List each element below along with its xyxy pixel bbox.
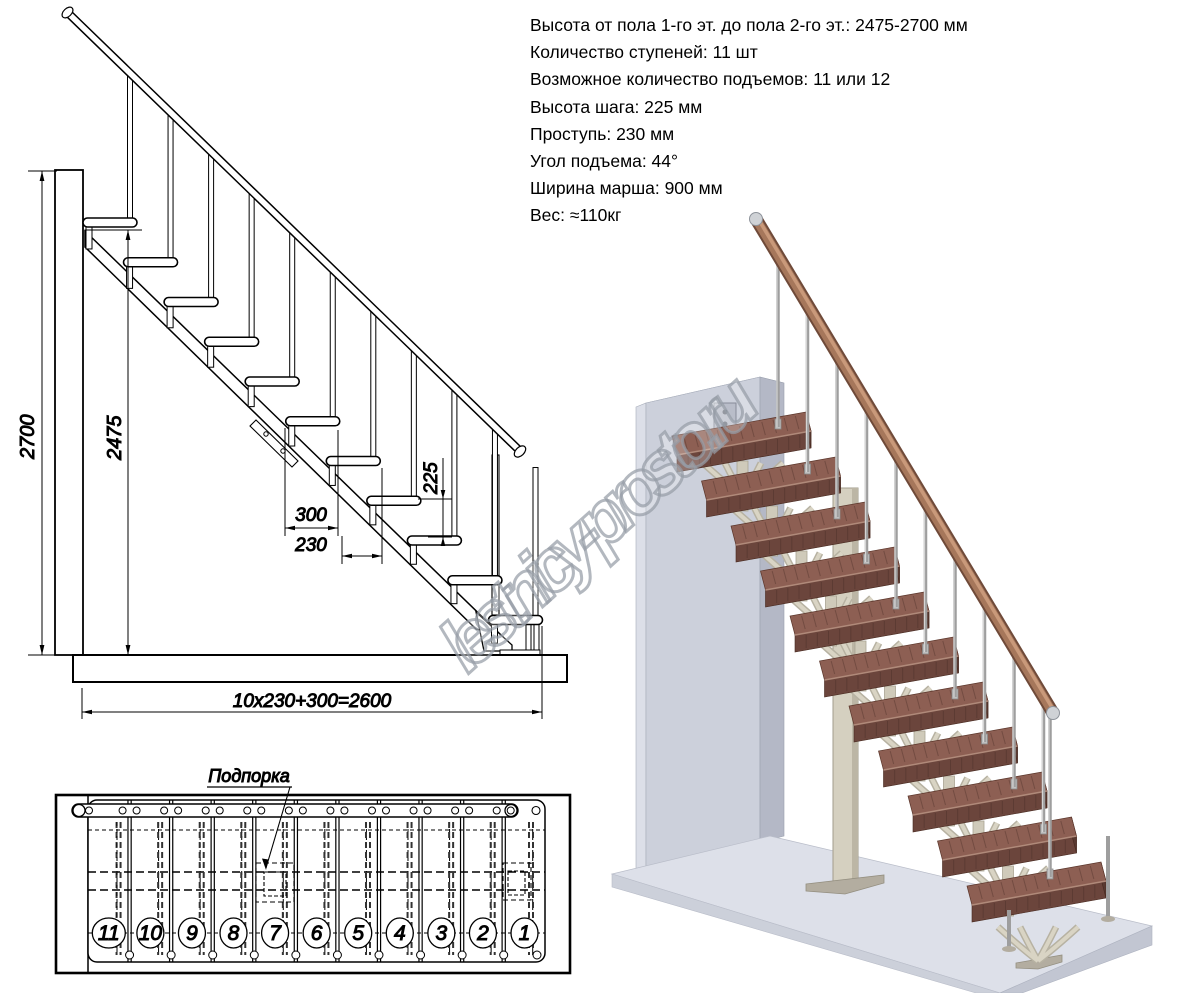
plan-rail-baluster [216,807,223,814]
plan-bolt [533,951,541,959]
elevation-step [367,496,421,505]
plan-step-number: 3 [436,922,448,945]
plan-bolt [209,951,217,959]
elevation-baluster [411,349,416,499]
plan-rail-baluster [202,807,209,814]
render-wall-left [636,403,646,872]
plan-rail-baluster [410,807,417,814]
plan-drawing: 1110987654321 Подпорка [56,766,570,973]
elevation-step-post [492,623,498,644]
elevation-step [245,377,299,386]
elevation-step [326,457,380,466]
plan-bolt [458,951,466,959]
dim-flight-height: 2475 [104,415,126,461]
elevation-step-post [167,305,173,328]
elevation-step-post [248,384,254,407]
spec-line-height-range: Высота от пола 1-го эт. до пола 2-го эт.… [530,12,1090,39]
elevation-step-post [127,265,133,289]
dim-rise: 225 [421,462,442,495]
plan-step-number: 9 [186,922,198,945]
elevation-step [83,218,137,227]
render-post-base [1002,946,1016,952]
plan-bolt [126,951,134,959]
elevation-step-post [289,424,295,446]
plan-step-number: 6 [311,922,323,945]
spec-line-tread: Проступь: 230 мм [530,121,1090,148]
spec-line-step-count: Количество ступеней: 11 шт [530,39,1090,66]
plan-rail-baluster [493,807,500,814]
blueprint-canvas: 2700 2475 300 230 225 10x230+300=2600 11… [0,0,1191,993]
elevation-step [489,616,543,625]
dim-tread: 230 [294,535,327,556]
elevation-baluster [330,270,335,419]
plan-bolt [375,951,383,959]
elevation-baluster [492,428,497,579]
elevation-step-post [451,583,457,604]
render-3d [612,213,1152,993]
plan-bolt [250,951,258,959]
plan-step-number: 4 [394,922,406,945]
elevation-baluster [452,389,457,539]
plan-rail-baluster [507,807,514,814]
elevation-step [205,337,259,346]
render-handrail-cap-bottom [1047,707,1060,720]
elevation-step [448,576,502,585]
elevation-newel-lower [526,623,531,653]
elevation-baluster [209,152,214,300]
spec-line-width: Ширина марша: 900 мм [530,175,1090,202]
dim-overhang: 300 [295,505,327,526]
elevation-drawing: 2700 2475 300 230 225 10x230+300=2600 [17,5,567,719]
elevation-baluster [290,231,295,380]
spec-line-weight: Вес: ≈110кг [530,202,1090,229]
elevation-step [164,298,218,307]
plan-rail-baluster [452,807,459,814]
plan-bolt [417,951,425,959]
elevation-baluster [371,310,376,460]
elevation-step-post [329,464,335,486]
plan-rail-baluster [86,807,93,814]
elevation-baluster [533,468,538,619]
plan-step-number: 8 [228,922,240,945]
elevation-step-post [410,543,416,564]
elevation-floor [73,655,567,682]
plan-bolt [167,951,175,959]
elevation-step-post [208,344,214,367]
spec-block: Высота от пола 1-го эт. до пола 2-го эт.… [530,12,1090,230]
plan-rail-baluster [285,807,292,814]
elevation-balusters-group [86,73,538,643]
render-bracket-bolt [723,410,728,415]
spec-line-angle: Угол подъема: 44° [530,148,1090,175]
plan-bolt [333,951,341,959]
elevation-baluster [168,113,173,261]
plan-step-number: 7 [269,922,282,945]
plan-rail-baluster [341,807,348,814]
elevation-baluster [128,73,133,221]
elevation-baluster [249,192,254,341]
spec-line-rise-count: Возможное количество подъемов: 11 или 12 [530,66,1090,93]
elevation-wall [55,170,83,655]
plan-rail-baluster [119,807,126,814]
plan-step-number: 1 [519,922,531,945]
plan-rail-baluster [368,807,375,814]
spec-line-step-height: Высота шага: 225 мм [530,94,1090,121]
plan-rail-baluster [175,807,182,814]
plan-step-number: 10 [139,922,163,945]
plan-rail-baluster [133,807,140,814]
dim-total-height: 2700 [17,415,39,461]
plan-step-number: 5 [352,922,364,945]
plan-step-number: 11 [98,922,120,945]
plan-bolt [292,951,300,959]
plan-rail-baluster [299,807,306,814]
render-post-base [1101,916,1115,922]
plan-rail-baluster [466,807,473,814]
plan-rail-baluster [424,807,431,814]
dim-run-formula: 10x230+300=2600 [233,691,392,712]
plan-bolt [500,951,508,959]
plan-step-number: 2 [476,922,489,945]
plan-rail-baluster [161,807,168,814]
elevation-steps-group [83,218,543,625]
elevation-handrail [65,10,523,454]
elevation-step [124,258,178,267]
plan-rail-baluster [382,807,389,814]
plan-rail-baluster [327,807,334,814]
render-bracket-bolt [723,422,728,427]
plan-rail-baluster [258,807,265,814]
elevation-step [286,417,340,426]
elevation-step-post [86,225,92,249]
elevation-newel-lower [534,623,539,653]
plan-rail-baluster [244,807,251,814]
elevation-step-post [370,503,376,525]
plan-support-label: Подпорка [208,766,289,786]
plan-handrail-cap [73,805,85,817]
